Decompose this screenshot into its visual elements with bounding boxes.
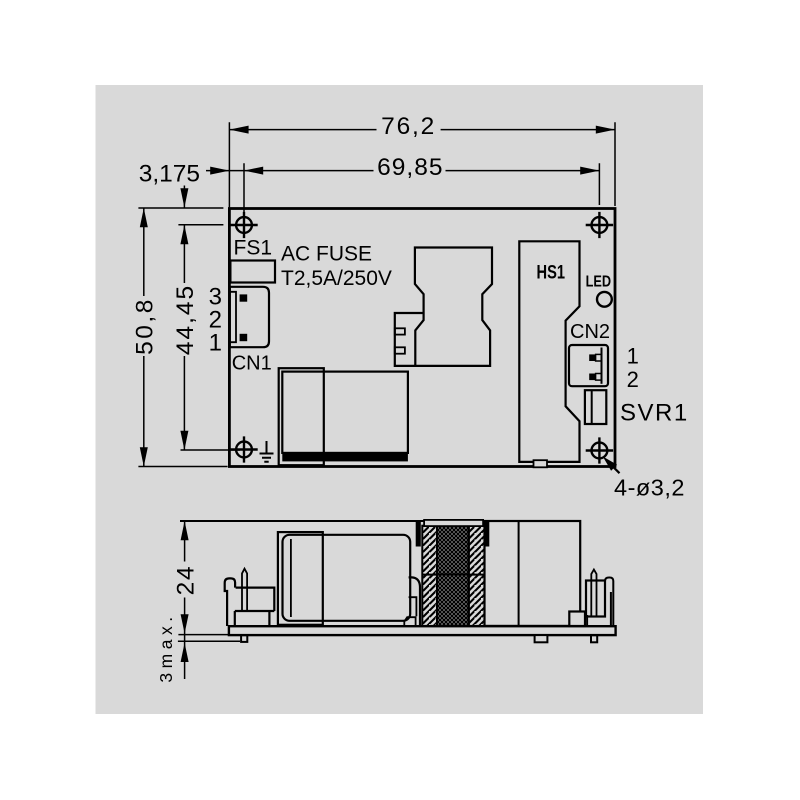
svg-text:1: 1 <box>209 330 222 357</box>
svg-text:24: 24 <box>172 565 199 596</box>
svg-text:LED: LED <box>586 273 612 290</box>
svg-text:76,2: 76,2 <box>381 113 436 140</box>
svg-text:T2,5A/250V: T2,5A/250V <box>281 267 392 290</box>
svg-text:HS1: HS1 <box>537 263 566 284</box>
svg-text:69,85: 69,85 <box>377 154 443 181</box>
svg-text:SVR1: SVR1 <box>620 400 689 427</box>
svg-text:3max.: 3max. <box>156 612 176 682</box>
svg-text:44,45: 44,45 <box>172 284 199 355</box>
svg-text:CN1: CN1 <box>232 353 272 375</box>
svg-text:FS1: FS1 <box>234 237 273 260</box>
svg-text:2: 2 <box>627 367 639 392</box>
svg-text:50,8: 50,8 <box>131 297 158 355</box>
svg-text:AC FUSE: AC FUSE <box>281 243 372 266</box>
svg-text:3,175: 3,175 <box>139 161 200 188</box>
svg-text:1: 1 <box>627 344 639 369</box>
svg-text:CN2: CN2 <box>570 321 610 343</box>
svg-text:4-ø3,2: 4-ø3,2 <box>614 475 685 501</box>
